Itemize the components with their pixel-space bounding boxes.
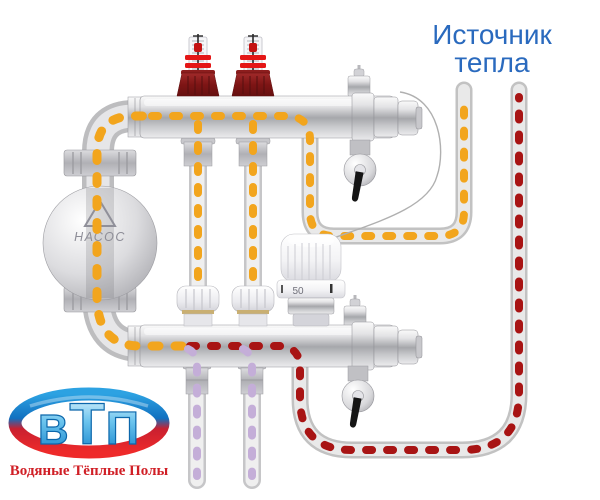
loop-valve-cap-2: [232, 286, 274, 326]
heat-source-label: Источник тепла: [432, 19, 552, 78]
heat-source-line1: Источник: [432, 19, 552, 50]
logo-tagline: Водяные Тёплые Полы: [10, 463, 169, 479]
flow-meter-2: [232, 34, 274, 96]
company-logo: ВТП Водяные Тёплые Полы: [10, 392, 169, 479]
manifold-diagram: НАСОС: [0, 0, 600, 500]
heat-source-line2: тепла: [454, 47, 530, 78]
air-vent-icon: [348, 65, 370, 97]
thermostat-scale-value: 50: [292, 286, 304, 297]
loop-valve-cap-1: [177, 286, 219, 326]
flow-meter-1: [177, 34, 219, 96]
supply-manifold: [128, 65, 422, 202]
supply-drain-valve: [344, 140, 376, 202]
return-drain-valve: [342, 366, 374, 428]
mixing-manifold: [128, 295, 422, 428]
thermostatic-head: 50: [277, 234, 345, 326]
diagram-canvas: НАСОС: [0, 0, 600, 500]
